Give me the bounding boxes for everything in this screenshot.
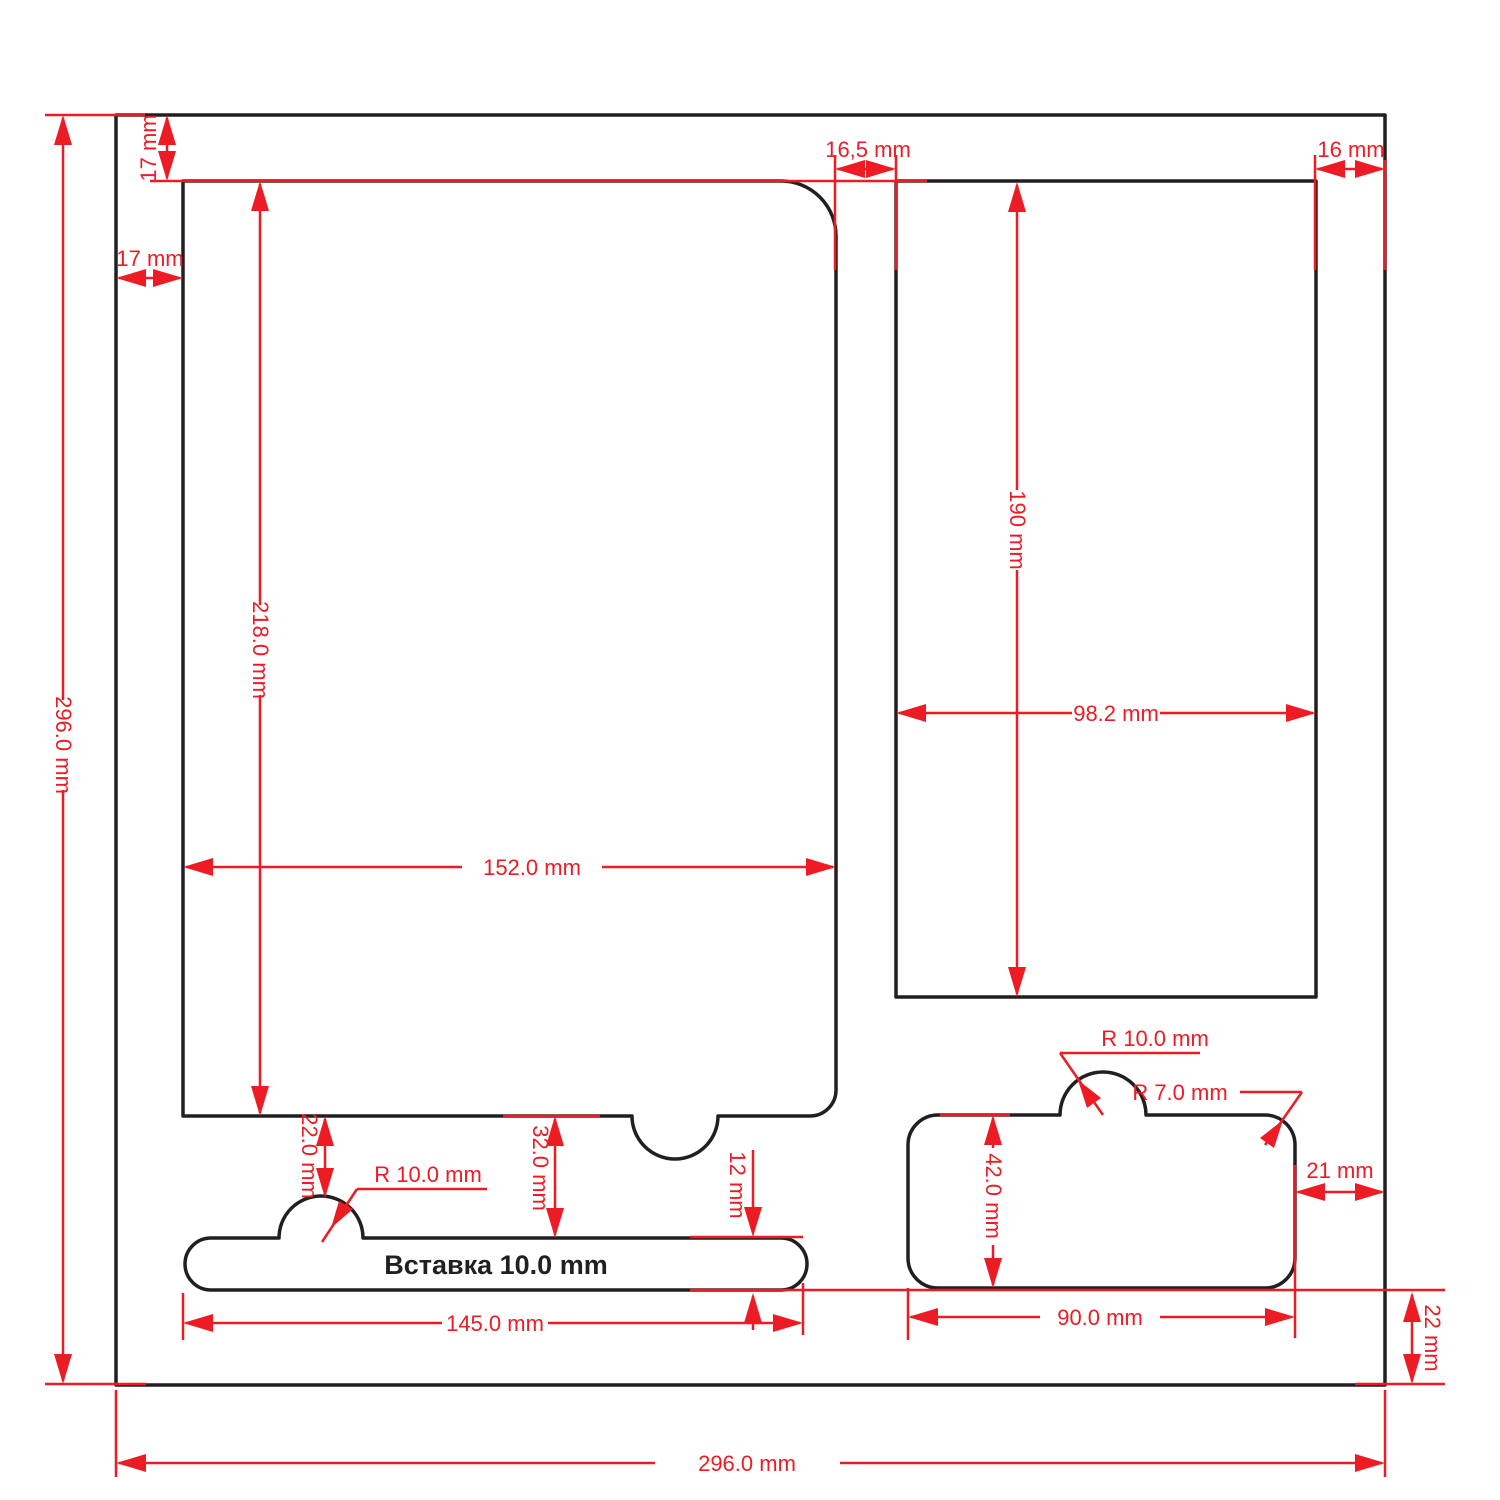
arrowhead: [835, 160, 865, 178]
extension-lines: [45, 115, 1445, 1477]
dim-label-tablet-width: 152.0 mm: [483, 855, 581, 880]
dim-left-margin: 17 mm: [116, 246, 184, 287]
arrowhead: [1403, 1354, 1421, 1384]
arrowhead: [251, 1086, 269, 1116]
arrowhead: [1355, 1454, 1385, 1472]
dim-notch-offset: 22.0 mm: [297, 1113, 334, 1199]
dim-label-tablet-right-gap: 16,5 mm: [825, 137, 911, 162]
tablet-pocket-outline: [183, 181, 836, 1159]
dim-label-pocket-height: 190 mm: [1005, 490, 1030, 569]
dim-label-box-width: 90.0 mm: [1057, 1305, 1143, 1330]
arrowhead: [866, 160, 896, 178]
dim-label-sheet-width: 296.0 mm: [698, 1451, 796, 1476]
arrowhead: [1265, 1308, 1295, 1326]
dim-label-bar-height: 12 mm: [725, 1151, 750, 1218]
dim-label-box-right-gap: 21 mm: [1306, 1158, 1373, 1183]
arrowhead: [183, 1314, 213, 1332]
dim-label-sheet-height: 296.0 mm: [51, 696, 76, 794]
dim-box-right-gap: 21 mm: [1295, 1158, 1385, 1201]
dim-label-bar-bump-radius: R 10.0 mm: [374, 1162, 482, 1187]
dim-bar-width: 145.0 mm: [183, 1311, 803, 1336]
arrowhead: [116, 269, 146, 287]
dim-label-box-bottom-gap: 22 mm: [1420, 1304, 1445, 1371]
dim-label-box-height: 42.0 mm: [981, 1153, 1006, 1239]
dim-label-box-corner-radius: R 7.0 mm: [1132, 1080, 1227, 1105]
dim-label-right-margin: 16 mm: [1317, 137, 1384, 162]
dim-pocket-height: 190 mm: [1005, 182, 1030, 997]
arrowhead: [251, 181, 269, 211]
insert-caption: Вставка 10.0 mm: [384, 1250, 607, 1280]
arrowhead: [116, 1454, 146, 1472]
dim-pocket-width: 98.2 mm: [896, 701, 1316, 726]
dim-sheet-height: 296.0 mm: [51, 115, 76, 1384]
arrowhead: [773, 1314, 803, 1332]
dim-box-width: 90.0 mm: [908, 1305, 1295, 1330]
dim-label-bar-width: 145.0 mm: [446, 1311, 544, 1336]
dim-tablet-height: 218.0 mm: [248, 181, 273, 1116]
right-pocket-outline: [896, 181, 1316, 997]
arrowhead: [1008, 967, 1026, 997]
drawing-canvas: 296.0 mm 296.0 mm 17 mm 17 mm 16,5 mm 16…: [0, 0, 1500, 1500]
arrowhead: [1078, 1080, 1101, 1108]
arrowhead: [153, 269, 183, 287]
dim-label-top-margin: 17 mm: [136, 114, 161, 181]
small-box-outline: [908, 1072, 1295, 1288]
arrowhead: [1286, 704, 1316, 722]
arrowhead: [546, 1208, 564, 1238]
dim-label-pocket-width: 98.2 mm: [1073, 701, 1159, 726]
dim-label-left-margin: 17 mm: [116, 246, 183, 271]
dim-label-tablet-height: 218.0 mm: [248, 601, 273, 699]
dim-sheet-width: 296.0 mm: [116, 1451, 1385, 1476]
arrowhead: [54, 1354, 72, 1384]
arrowhead: [984, 1115, 1002, 1145]
arrowhead: [806, 858, 836, 876]
dim-label-bar-gap: 32.0 mm: [528, 1125, 553, 1211]
arrowhead: [896, 704, 926, 722]
arrowhead: [183, 858, 213, 876]
arrowhead: [984, 1258, 1002, 1288]
dim-bar-bump-radius: R 10.0 mm: [322, 1162, 487, 1242]
arrowhead: [1315, 160, 1345, 178]
arrowhead: [1403, 1292, 1421, 1322]
dim-box-bottom-gap: 22 mm: [1403, 1292, 1445, 1384]
arrowhead: [1355, 1183, 1385, 1201]
arrowhead: [908, 1308, 938, 1326]
arrowhead: [1008, 182, 1026, 212]
arrowhead: [54, 115, 72, 145]
dim-top-margin: 17 mm: [136, 114, 176, 181]
dim-bar-height: 12 mm: [725, 1150, 762, 1330]
dim-right-margin: 16 mm: [1315, 137, 1385, 178]
dim-tablet-width: 152.0 mm: [183, 855, 836, 880]
dim-bar-gap: 32.0 mm: [528, 1116, 564, 1238]
technical-drawing-page: 296.0 mm 296.0 mm 17 mm 17 mm 16,5 mm 16…: [0, 0, 1500, 1500]
arrowhead: [1295, 1183, 1325, 1201]
arrowhead: [1260, 1120, 1283, 1148]
arrowhead: [744, 1293, 762, 1323]
dim-label-box-bump-radius: R 10.0 mm: [1101, 1026, 1209, 1051]
dim-box-height: 42.0 mm: [981, 1115, 1006, 1288]
dim-label-notch-offset: 22.0 mm: [297, 1113, 322, 1199]
arrowhead: [1355, 160, 1385, 178]
dim-tablet-right-gap: 16,5 mm: [825, 137, 911, 178]
